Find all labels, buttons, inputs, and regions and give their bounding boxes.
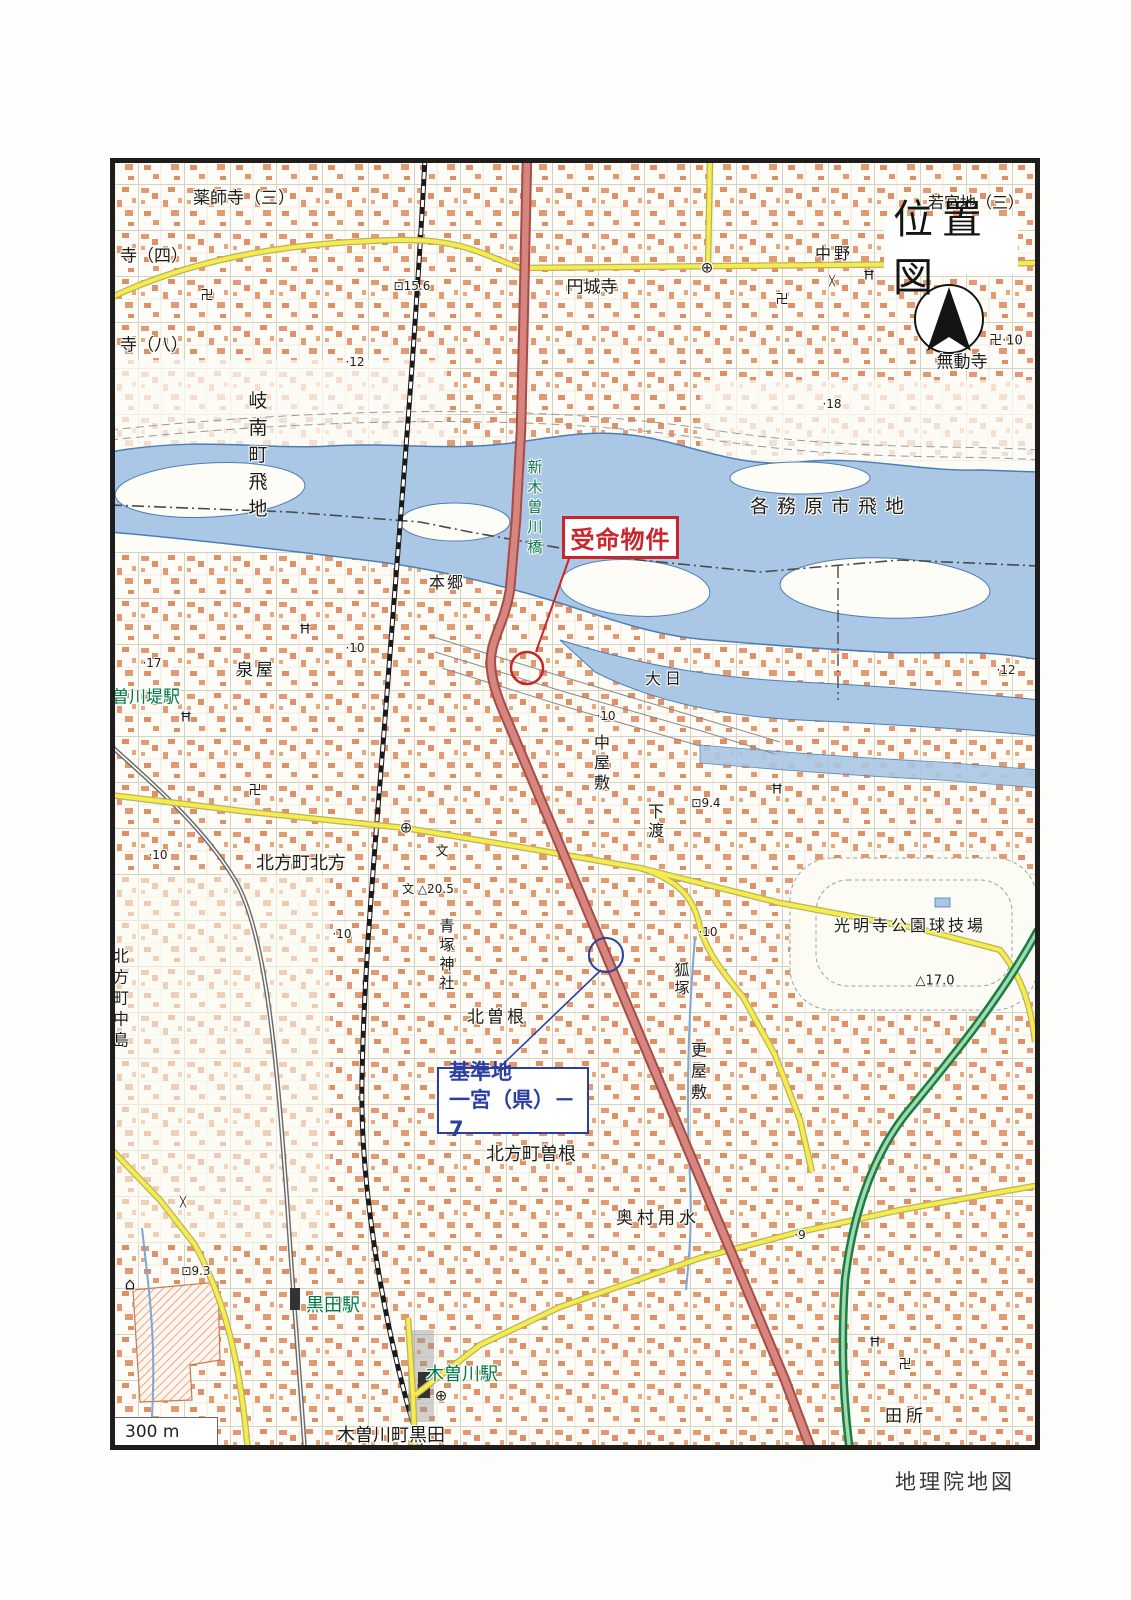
map-label-crossing-x-a: ╳ <box>829 277 835 287</box>
benchmark-line2: 一宮（県）－7 <box>449 1086 577 1143</box>
map-label-kisogawa-station: 木曽川駅 <box>426 1366 498 1384</box>
map-label-temple-d: 卍 <box>898 1359 911 1372</box>
map-label-spot-height-10f: ·10 <box>148 849 167 861</box>
map-label-shrine-e: Ħ <box>869 1337 881 1350</box>
map-label-sarayashiki: 更屋敷 <box>689 1042 705 1105</box>
map-title: 位置図 <box>884 216 1018 274</box>
map-label-spot-height-10d: ·10 <box>332 928 351 940</box>
map-label-komyoji-park-stadium: 光明寺公園球技場 <box>834 918 986 934</box>
map-label-kitagata-cho-sone: 北方町曽根 <box>486 1146 576 1164</box>
map-label-spot-height-9-4: ⊡9.4 <box>691 797 720 809</box>
map-label-shrine-c: Ħ <box>771 784 783 797</box>
map-label-hongo: 本郷 <box>429 575 465 591</box>
map-label-kitasone: 北曽根 <box>467 1010 527 1027</box>
map-label-kakamigahara-shi-tobichi: 各務原市飛地 <box>750 498 912 517</box>
map-label-mudoji: 無動寺 <box>937 355 988 372</box>
map-label-shin-kisogawa-bashi: 新木曽川橋 <box>527 459 542 559</box>
benchmark-line1: 基準地 <box>449 1058 577 1086</box>
map-label-spot-height-17: ·17 <box>142 657 161 669</box>
map-label-town-office-b: ⊕ <box>701 261 714 276</box>
map-label-temple-a: 卍 <box>775 294 788 307</box>
map-label-shrine-a: Ħ <box>180 712 192 725</box>
map-label-kisogawatsutsumi-station: 曽川堤駅 <box>112 690 180 707</box>
map-label-spot-height-10b: ·10 <box>596 710 615 722</box>
map-label-station-mark: ⊕ <box>435 1389 448 1404</box>
map-label-tadokoro: 田所 <box>885 1409 927 1426</box>
map-label-kitagata-cho-kitagata: 北方町北方 <box>256 855 346 873</box>
map-label-yakushiji-3: 薬師寺（三） <box>193 191 295 208</box>
map-label-temple-c: 卍 <box>248 785 261 798</box>
map-label-temple-spot-10: 卍·10 <box>989 335 1023 348</box>
map-label-shrine-d: Ħ <box>863 270 875 283</box>
map-credit: 地理院地図 <box>895 1466 1015 1496</box>
subject-annotation-box: 受命物件 <box>562 516 679 559</box>
map-label-school-mark-a: 文 <box>435 846 448 859</box>
map-label-kitsunezuka: 狐塚 <box>674 962 689 998</box>
map-label-spot-height-15-6: ⊡15.6 <box>394 280 431 292</box>
map-label-school-triangulation-20-5: 文 △20.5 <box>402 883 454 895</box>
map-label-shimowatari: 下渡 <box>646 803 662 841</box>
map-frame: 位置図 受命物件 基準地 一宮（県）－7 300 m 薬師寺（三）寺（四）寺（八… <box>110 158 1040 1450</box>
map-label-home-icon: ⌂ <box>125 1277 136 1294</box>
map-label-triangulation-17-0: △17.0 <box>916 975 955 988</box>
map-label-nakano: 中野 <box>815 246 853 262</box>
map-label-ginan-cho-tobichi: 岐南町飛地 <box>247 391 266 526</box>
benchmark-annotation-box: 基準地 一宮（県）－7 <box>437 1067 589 1134</box>
scale-bar: 300 m <box>115 1417 218 1445</box>
map-label-kisogawa-cho-kuroda: 木曽川町黒田 <box>337 1427 445 1445</box>
subject-annotation-label: 受命物件 <box>571 520 671 555</box>
map-label-kitagata-cho-nakashima: 北方町中島 <box>111 948 127 1053</box>
map-label-spot-height-18: ·18 <box>822 398 841 410</box>
map-label-okumura-yosui: 奥村用水 <box>616 1211 700 1228</box>
map-label-dainichi: 大日 <box>645 671 685 687</box>
map-label-spot-height-9: ·9 <box>794 1229 805 1241</box>
map-label-spot-height-12b: ·12 <box>996 664 1015 676</box>
map-label-spot-height-10a: ·10 <box>345 642 364 654</box>
map-label-shrine-b: Ħ <box>299 624 311 637</box>
map-label-aotsuka-jinja: 青塚神社 <box>439 918 454 994</box>
map-labels-layer: 薬師寺（三）寺（四）寺（八）若宮地（三）中野円城寺⊡15.6·12·18卍·10… <box>115 163 1035 1445</box>
map-label-spot-height-10e: ·10 <box>698 926 717 938</box>
map-label-nakayashiki: 中屋敷 <box>592 734 608 794</box>
map-label-izumiya: 泉屋 <box>236 663 276 680</box>
map-label-temple-b: 卍 <box>200 290 213 303</box>
map-label-kuroda-station: 黒田駅 <box>306 1297 360 1315</box>
map-label-enjoji: 円城寺 <box>567 280 618 297</box>
map-label-town-office-a: ⊕ <box>400 821 413 836</box>
map-label-spot-height-12: ·12 <box>345 356 364 368</box>
map-label-spot-height-9-3: ⊡9.3 <box>181 1265 210 1277</box>
map-label-tera-8: 寺（八） <box>120 338 188 355</box>
map-label-crossing-x-b: ╳ <box>180 1198 186 1208</box>
scanned-map-page: 位置図 受命物件 基準地 一宮（県）－7 300 m 薬師寺（三）寺（四）寺（八… <box>0 0 1131 1600</box>
scale-label: 300 m <box>125 1422 179 1442</box>
map-label-tera-4: 寺（四） <box>120 249 188 266</box>
